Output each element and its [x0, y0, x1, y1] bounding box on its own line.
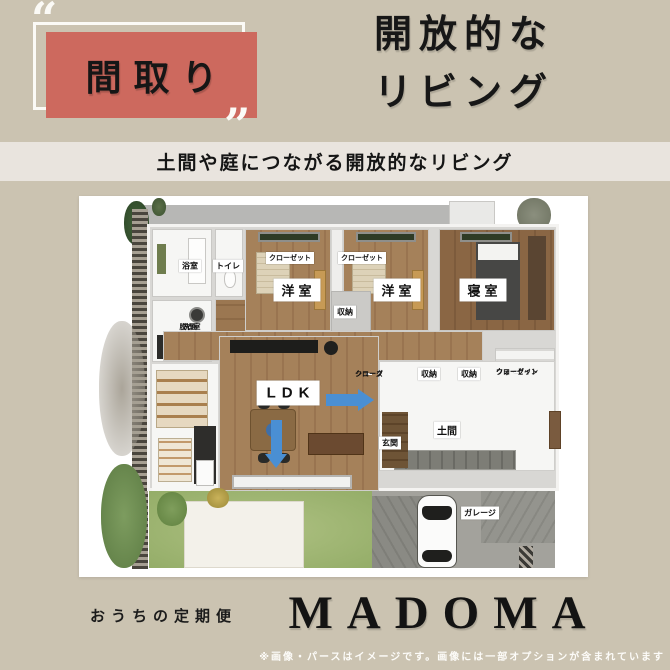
- room-label-western-2: 洋室: [373, 279, 420, 302]
- bush-icon: [157, 492, 187, 526]
- room-label-western-1: 洋室: [273, 279, 320, 302]
- disclaimer-text: ※画像・パースはイメージです。画像には一部オプションが含まれています: [259, 648, 665, 663]
- bush-icon: [207, 488, 229, 508]
- tree-icon: [101, 464, 147, 568]
- patio: [184, 501, 304, 568]
- brand-logo: MADOMA: [283, 586, 605, 640]
- room-label-walkin-closet: ウォークインクローゼット: [514, 371, 520, 373]
- floorplan-image: 浴室 トイレ 洗面脱衣室 クローゼット クローゼット 洋室 洋室 寝室 収納 シ…: [79, 196, 588, 577]
- room-label-closet-right: クローゼット: [338, 252, 386, 264]
- room-label-storage-center: 収納: [334, 306, 356, 319]
- room-label-washroom: 洗面脱衣室: [187, 326, 193, 328]
- room-label-storage-2: 収納: [458, 368, 480, 381]
- subtitle-banner: 土間や庭につながる開放的なリビング: [0, 142, 670, 181]
- side-door: [549, 411, 561, 449]
- room-label-storage-1: 収納: [418, 368, 440, 381]
- room-label-doma: 土間: [434, 422, 460, 439]
- tree-icon: [99, 321, 145, 456]
- subtitle-text: 土間や庭につながる開放的なリビング: [156, 148, 513, 175]
- car-icon: [417, 495, 457, 568]
- room-label-bath: 浴室: [179, 260, 201, 273]
- room-label-garage: ガレージ: [461, 507, 499, 520]
- room-label-shoes-closet: シューズクローク: [366, 373, 372, 375]
- room-label-ldk: LDK: [257, 381, 320, 406]
- badge-label: 間取り: [85, 49, 229, 101]
- tree-icon: [152, 198, 166, 216]
- kitchen-zone: [152, 364, 218, 491]
- ldk-room: [219, 336, 379, 491]
- hatch-strip: [519, 546, 533, 568]
- room-label-bedroom: 寝室: [459, 279, 506, 302]
- title-line-1: 開放的な: [336, 6, 592, 64]
- room-label-entrance: 玄関: [379, 437, 401, 450]
- room-label-toilet: トイレ: [213, 260, 243, 273]
- room-label-closet-left: クローゼット: [266, 252, 314, 264]
- page-title: 開放的な リビング: [336, 6, 592, 122]
- tagline: おうちの定期便: [90, 605, 237, 626]
- title-line-2: リビング: [336, 64, 592, 122]
- roof-band: [132, 205, 450, 224]
